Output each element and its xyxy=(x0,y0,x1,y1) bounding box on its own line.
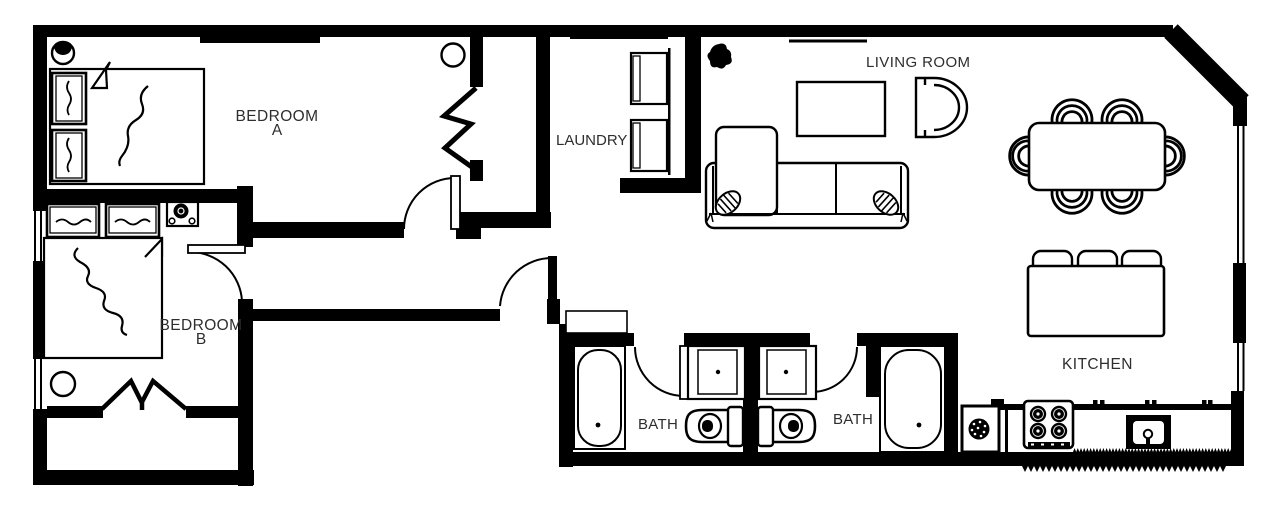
svg-text:B: B xyxy=(196,331,206,348)
svg-text:A: A xyxy=(272,122,283,139)
svg-text:LIVING ROOM: LIVING ROOM xyxy=(866,54,970,71)
svg-text:KITCHEN: KITCHEN xyxy=(1062,356,1133,373)
svg-text:LAUNDRY: LAUNDRY xyxy=(556,132,627,149)
svg-text:BATH: BATH xyxy=(833,411,873,428)
svg-text:BATH: BATH xyxy=(638,416,678,433)
